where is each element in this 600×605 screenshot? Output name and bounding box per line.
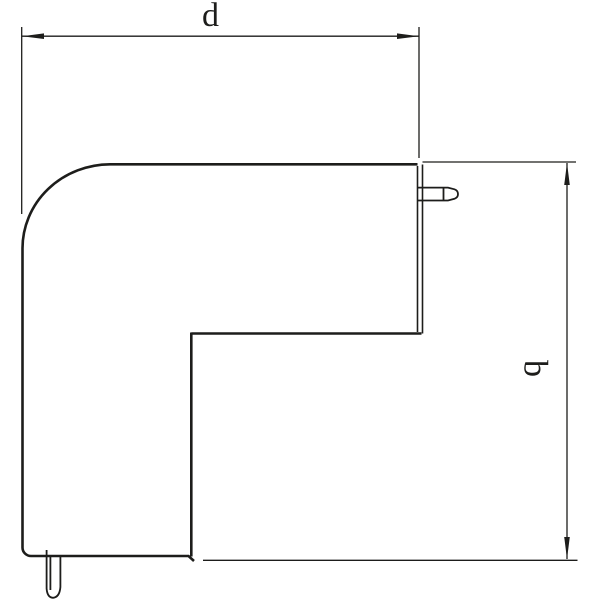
- dimension-drawing: d b: [0, 0, 600, 600]
- right-arrowhead-top: [564, 163, 570, 185]
- right-arrowhead-bottom: [564, 537, 570, 559]
- right-spigot: [418, 187, 458, 201]
- right-dimension: b: [203, 162, 578, 560]
- corner-piece-outline: [23, 164, 423, 561]
- right-dimension-label: b: [517, 360, 554, 377]
- top-arrowhead-left: [22, 33, 44, 39]
- right-spigot-body: [418, 188, 458, 201]
- technical-drawing-canvas: d b: [0, 0, 600, 600]
- top-arrowhead-right: [397, 33, 419, 39]
- top-dimension: d: [22, 0, 419, 214]
- top-dimension-label: d: [202, 0, 219, 34]
- outer-contour: [23, 164, 418, 561]
